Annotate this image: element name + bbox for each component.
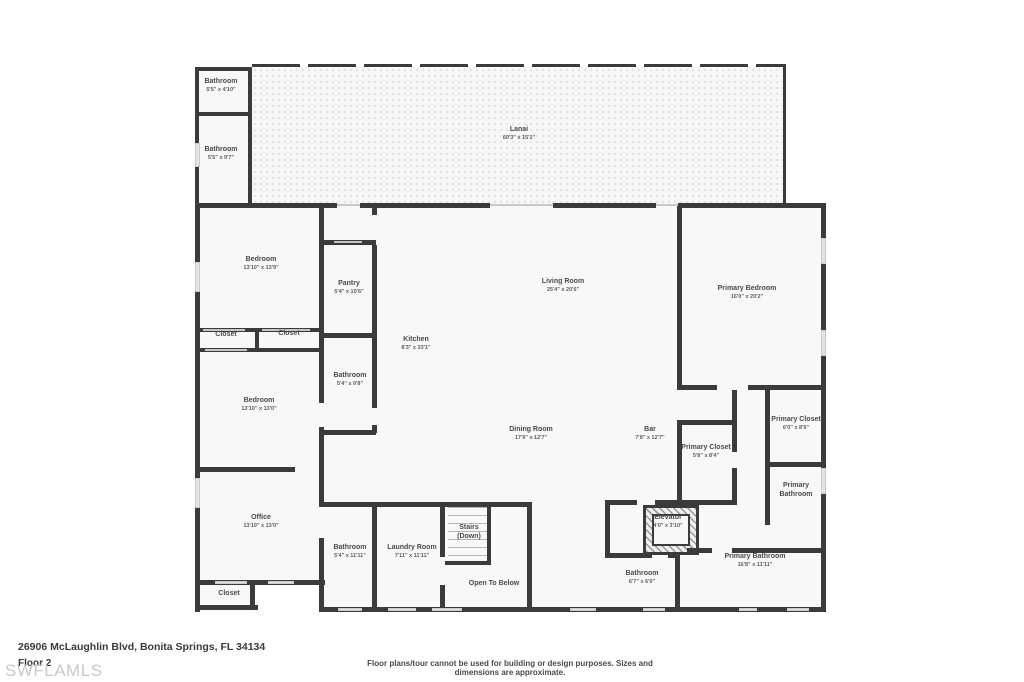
room-label: Primary Closet5'8" x 8'4"	[681, 444, 731, 460]
room-name: Bathroom	[322, 544, 378, 553]
wall	[732, 390, 737, 452]
window	[195, 262, 200, 292]
wall	[445, 561, 491, 565]
wall	[195, 203, 337, 208]
room-name: Bathroom	[191, 78, 251, 87]
room-name: Bedroom	[209, 397, 309, 406]
window	[195, 478, 200, 508]
wall	[765, 462, 826, 467]
door-opening	[334, 241, 362, 243]
wall	[605, 500, 610, 555]
wall	[195, 605, 258, 610]
room-dimensions: 16'0" x 20'2"	[687, 294, 807, 301]
door-opening	[656, 204, 678, 206]
room-name: Bathroom	[320, 372, 380, 381]
room-label: Laundry Room7'11" x 11'11"	[372, 544, 452, 560]
wall	[195, 467, 295, 472]
window	[432, 608, 462, 611]
wall	[677, 420, 737, 425]
room-name: Elevator	[644, 514, 692, 523]
room-name: Living Room	[508, 278, 618, 287]
room-dimensions: (Down)	[444, 533, 494, 542]
room-name: Bedroom	[211, 256, 311, 265]
window	[739, 608, 757, 611]
exterior-notch	[255, 585, 319, 612]
window	[338, 608, 362, 611]
window	[821, 238, 826, 264]
room-dimensions: 8'3" x 33'1"	[376, 345, 456, 352]
room-dimensions: 7'11" x 11'11"	[372, 553, 452, 560]
room-dimensions: 5'4" x 11'11"	[322, 553, 378, 560]
room-label: Closet	[200, 331, 252, 340]
room-label: Open To Below	[449, 580, 539, 589]
wall	[527, 502, 532, 612]
room-name: Closet	[199, 590, 259, 599]
wall	[732, 468, 737, 502]
room-label: Primary Bedroom16'0" x 20'2"	[687, 285, 807, 301]
room-label: Closet	[261, 330, 317, 339]
room-label: Primary Closet6'0" x 8'9"	[766, 416, 826, 432]
room-label: Lanai60'3" x 15'1"	[459, 126, 579, 142]
room-label: Primary Bathroom16'8" x 11'11"	[695, 553, 815, 569]
room-dimensions: 4'0" x 3'10"	[644, 523, 692, 530]
wall	[765, 390, 770, 525]
wall	[677, 385, 717, 390]
door-opening	[337, 204, 360, 206]
room-name: Pantry	[314, 280, 384, 289]
room-label: Living Room25'4" x 20'6"	[508, 278, 618, 294]
room-label: Bathroom6'7" x 6'0"	[607, 570, 677, 586]
wall	[360, 203, 490, 208]
room-label: Closet	[199, 590, 259, 599]
room-dimensions: 60'3" x 15'1"	[459, 135, 579, 142]
room-label: Kitchen8'3" x 33'1"	[376, 336, 456, 352]
room-label: Primary Bathroom	[771, 482, 821, 500]
window	[821, 330, 826, 356]
room-name: Stairs	[444, 524, 494, 533]
wall	[605, 553, 652, 558]
room-name: Laundry Room	[372, 544, 452, 553]
room-dimensions: 13'10" x 13'0"	[211, 523, 311, 530]
room-dimensions: 17'9" x 12'7"	[481, 435, 581, 442]
room-label: Pantry5'4" x 10'6"	[314, 280, 384, 296]
room-dimensions: 25'4" x 20'6"	[508, 287, 618, 294]
room-label: Bathroom5'5" x 4'10"	[191, 78, 251, 94]
window	[570, 608, 596, 611]
door-opening	[490, 204, 553, 206]
room-name: Office	[211, 514, 311, 523]
window	[643, 608, 665, 611]
room-label: Bathroom5'5" x 9'7"	[191, 146, 251, 162]
room-name: Primary Closet	[766, 416, 826, 425]
window	[787, 608, 809, 611]
room-name: Closet	[200, 331, 252, 340]
lanai-screen-wall	[252, 64, 786, 67]
disclaimer-text: Floor plans/tour cannot be used for buil…	[349, 659, 671, 677]
wall	[319, 333, 376, 338]
room-label: Bathroom5'4" x 9'8"	[320, 372, 380, 388]
wall	[605, 500, 637, 505]
window	[268, 581, 294, 584]
room-name: Closet	[261, 330, 317, 339]
room-dimensions: 13'10" x 13'9"	[211, 265, 311, 272]
wall	[655, 500, 677, 505]
room-name: Bar	[615, 426, 685, 435]
room-dimensions: 5'4" x 9'8"	[320, 381, 380, 388]
room-name: Lanai	[459, 126, 579, 135]
room-dimensions: 7'8" x 12'7"	[615, 435, 685, 442]
mls-watermark: SWFLAMLS	[5, 661, 103, 681]
room-dimensions: 13'10" x 13'0"	[209, 406, 309, 413]
room-name: Open To Below	[449, 580, 539, 589]
floor-plan-canvas: Bathroom5'5" x 4'10"Bathroom5'5" x 9'7"L…	[0, 0, 1024, 682]
room-dimensions: 5'5" x 9'7"	[191, 155, 251, 162]
room-name: Primary Bathroom	[771, 482, 821, 500]
wall	[319, 430, 376, 435]
window	[821, 468, 826, 494]
room-name: Bathroom	[607, 570, 677, 579]
wall	[748, 385, 826, 390]
wall	[677, 500, 737, 505]
room-name: Bathroom	[191, 146, 251, 155]
room-name: Primary Closet	[681, 444, 731, 453]
room-dimensions: 6'0" x 8'9"	[766, 425, 826, 432]
wall	[678, 203, 826, 208]
wall	[372, 203, 377, 215]
window	[215, 581, 247, 584]
room-label: Bedroom13'10" x 13'0"	[209, 397, 309, 413]
lanai-screen-wall	[783, 64, 786, 205]
room-label: Office13'10" x 13'0"	[211, 514, 311, 530]
room-name: Primary Bedroom	[687, 285, 807, 294]
room-label: Bathroom5'4" x 11'11"	[322, 544, 378, 560]
room-name: Kitchen	[376, 336, 456, 345]
room-label: Stairs(Down)	[444, 524, 494, 542]
room-label: Bedroom13'10" x 13'9"	[211, 256, 311, 272]
window	[388, 608, 416, 611]
room-dimensions: 6'7" x 6'0"	[607, 579, 677, 586]
room-label: Bar7'8" x 12'7"	[615, 426, 685, 442]
room-dimensions: 5'5" x 4'10"	[191, 87, 251, 94]
room-name: Dining Room	[481, 426, 581, 435]
room-label: Dining Room17'9" x 12'7"	[481, 426, 581, 442]
wall	[195, 112, 252, 116]
room-dimensions: 5'4" x 10'6"	[314, 289, 384, 296]
room-dimensions: 5'8" x 8'4"	[681, 453, 731, 460]
room-label: Elevator4'0" x 3'10"	[644, 514, 692, 530]
wall	[553, 203, 656, 208]
room-dimensions: 16'8" x 11'11"	[695, 562, 815, 569]
wall	[319, 502, 445, 507]
room-name: Primary Bathroom	[695, 553, 815, 562]
property-address: 26906 McLaughlin Blvd, Bonita Springs, F…	[18, 641, 265, 653]
wall	[195, 67, 252, 71]
door-opening	[205, 349, 247, 351]
wall	[677, 205, 682, 387]
wall	[319, 427, 324, 502]
